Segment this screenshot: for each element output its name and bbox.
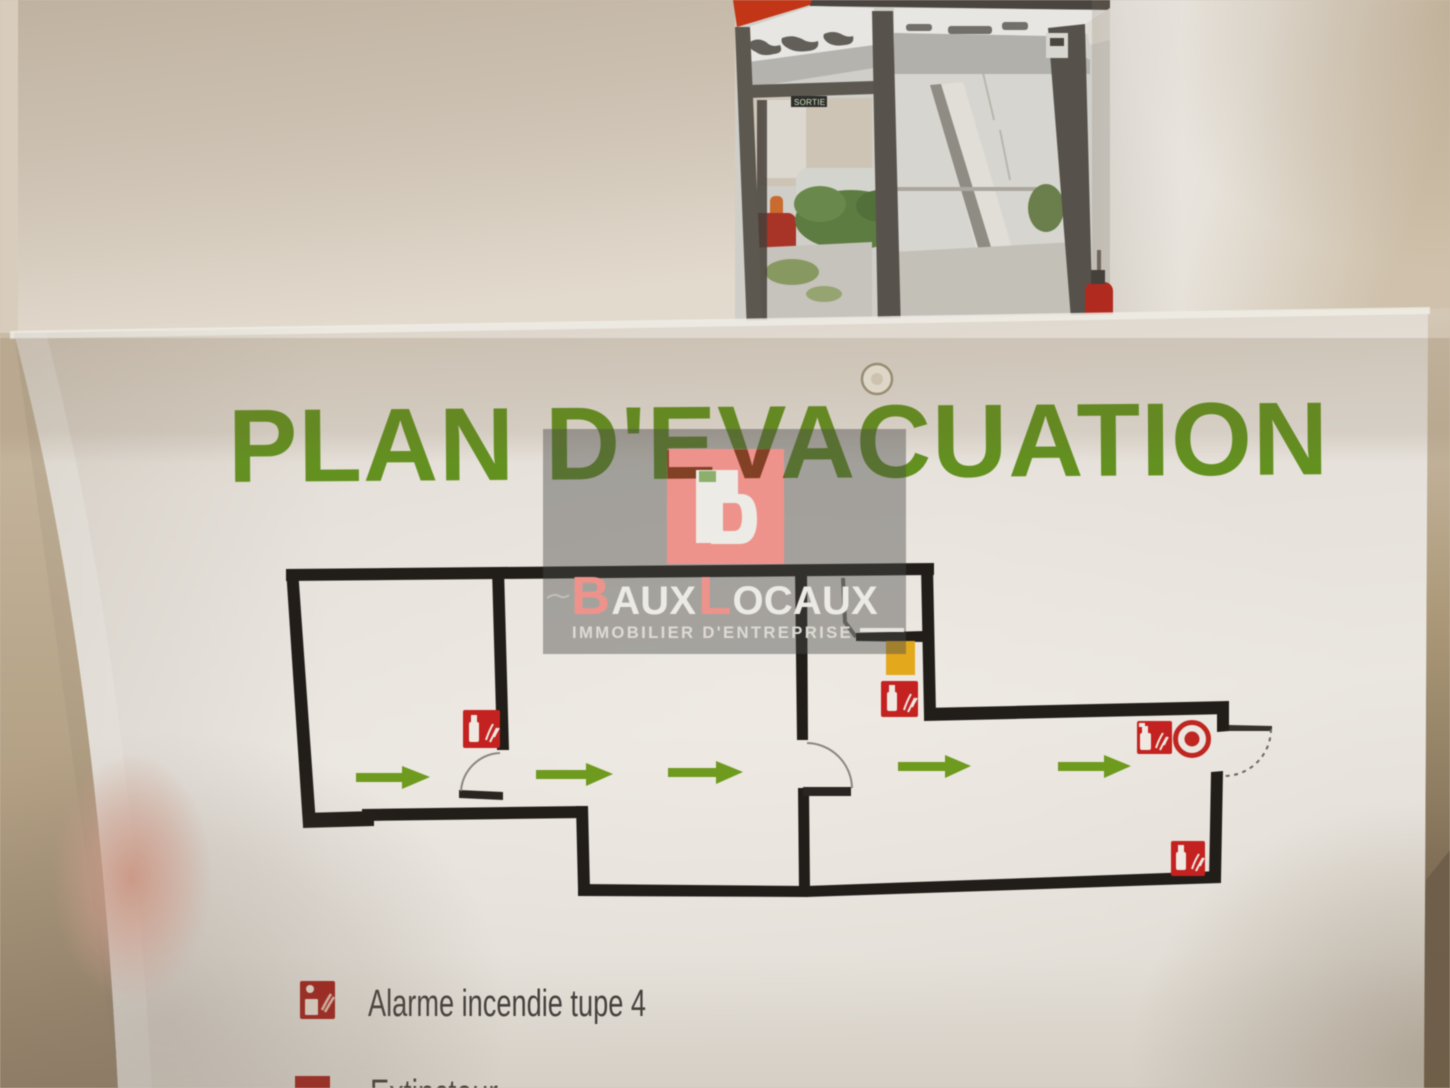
svg-text:IMMOBILIER D'ENTREPRISE: IMMOBILIER D'ENTREPRISE — [572, 624, 853, 642]
svg-text:SORTIE: SORTIE — [794, 98, 825, 107]
